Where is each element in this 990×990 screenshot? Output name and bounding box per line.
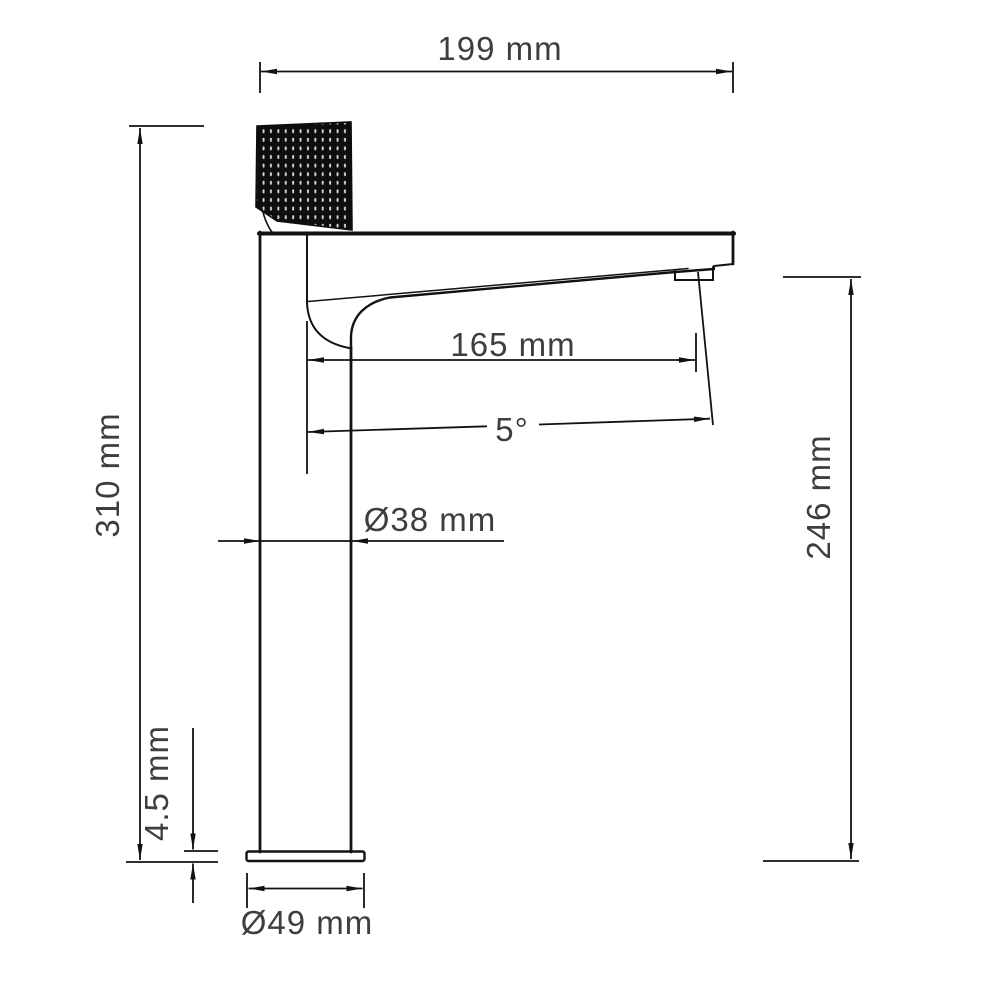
dim-label-base-thickness: 4.5 mm (138, 725, 175, 841)
dim-label-spout-angle: 5° (495, 411, 529, 448)
dim-label-outlet-height: 246 mm (800, 434, 837, 559)
right-arrowhead (352, 538, 368, 543)
technical-drawing-canvas: 199 mm 310 mm 4.5 mm Ø38 mm 165 mm 5° (0, 0, 990, 990)
faucet-outline (247, 122, 735, 861)
dim-line-left-segment (308, 426, 487, 432)
dimension-outlet-height: 246 mm (763, 277, 861, 861)
handle-knob (256, 122, 352, 230)
faucet-dimension-drawing: 199 mm 310 mm 4.5 mm Ø38 mm 165 mm 5° (0, 0, 990, 990)
dim-line-right-segment (539, 419, 710, 425)
ext-line-slanted (698, 272, 713, 425)
base-plate (247, 852, 365, 862)
dim-label-overall-height: 310 mm (89, 412, 126, 537)
dim-label-base-diameter: Ø49 mm (241, 904, 374, 941)
dimension-base-thickness: 4.5 mm (138, 725, 218, 903)
dim-label-spout-reach: 165 mm (450, 326, 575, 363)
spout-throat-outer-curve (351, 298, 390, 348)
dim-label-overall-width: 199 mm (437, 30, 562, 67)
spout-underside (390, 269, 714, 298)
dim-label-body-diameter: Ø38 mm (364, 501, 497, 538)
spout-tip-step (714, 264, 733, 269)
dimension-base-diameter: Ø49 mm (241, 873, 374, 941)
left-arrowhead (244, 538, 260, 543)
spout-throat-inner-curve (307, 303, 349, 348)
spout-underside-inner-edge (308, 269, 688, 302)
dimension-overall-width: 199 mm (260, 30, 733, 93)
dimension-spout-reach: 165 mm (307, 321, 696, 474)
